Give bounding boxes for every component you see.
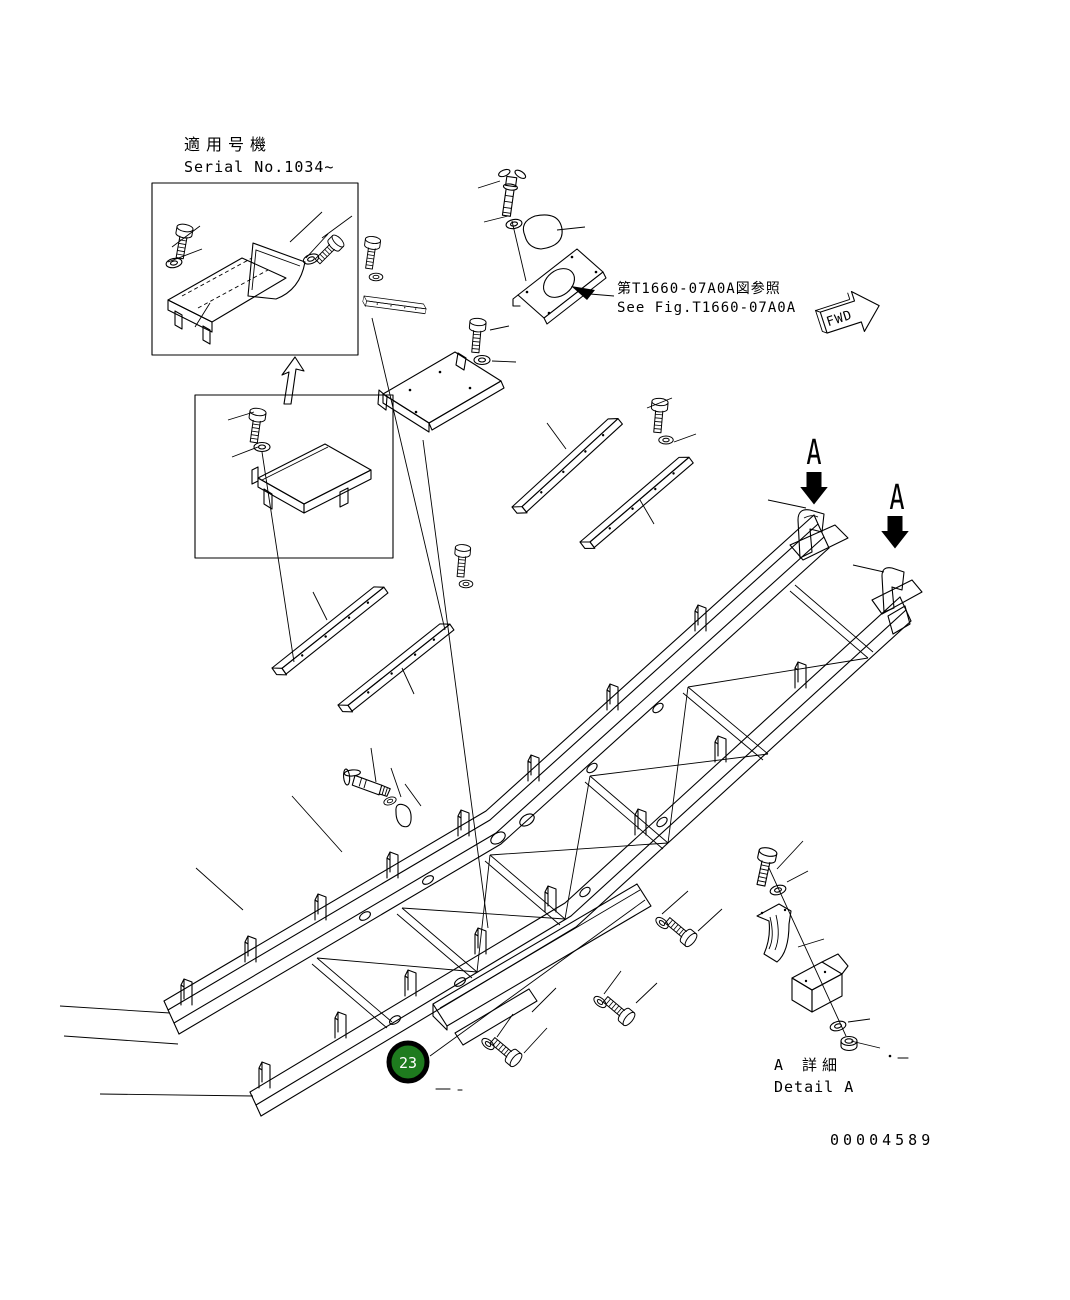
bottom-fastener-sets (480, 914, 699, 1068)
serial-label: 適用号機 Serial No.1034~ (184, 135, 334, 176)
fwd-arrow: FWD (813, 285, 885, 344)
applicable-machine-jp: 適用号機 (184, 135, 272, 154)
bolt-fastener (246, 407, 267, 443)
fwd-label: FWD (825, 308, 855, 330)
clamp-bracket (757, 904, 791, 962)
drain-valve (340, 766, 393, 796)
washer (369, 273, 383, 281)
mounting-strips (267, 414, 698, 717)
bolt-fastener (453, 544, 471, 578)
washer (769, 884, 787, 897)
box-bracket (792, 954, 848, 1012)
washer (829, 1020, 847, 1033)
washer (383, 795, 397, 806)
gusset-plate (248, 243, 305, 299)
grommet-plug (396, 804, 411, 826)
washer (254, 443, 270, 452)
detail-a-label: A 詳細 Detail A (774, 1056, 854, 1096)
see-fig-callout: 第T1660-07A0A図参照 See Fig.T1660-07A0A (571, 280, 796, 316)
section-marker-a1: A (800, 433, 828, 504)
nut (841, 1037, 857, 1051)
section-arrow-down-icon (800, 472, 828, 505)
washer (459, 580, 473, 588)
detail-a-assembly (752, 846, 857, 1050)
inset-box-serial-range (152, 183, 358, 355)
callout-23[interactable]: 23 (389, 1043, 427, 1081)
main-frame (164, 510, 922, 1116)
section-letter: A (889, 478, 904, 518)
callout-23-number[interactable]: 23 (399, 1054, 417, 1072)
section-arrow-down-icon (881, 516, 909, 549)
see-fig-jp: 第T1660-07A0A図参照 (617, 280, 781, 297)
inset-box-cover (195, 395, 393, 558)
upgrade-arrow (282, 357, 304, 404)
washer (659, 436, 673, 444)
section-letter: A (806, 433, 821, 473)
cover-plate-assembly (168, 258, 286, 344)
drawing-number: 00004589 (830, 1131, 934, 1149)
plate-with-hole (513, 249, 606, 324)
serial-range-text: Serial No.1034~ (184, 158, 334, 176)
bolt-fastener (467, 318, 486, 353)
see-fig-en: See Fig.T1660-07A0A (617, 300, 796, 316)
bolt-fastener (312, 233, 346, 267)
bolt-fastener (361, 236, 381, 270)
bolt-fastener (752, 846, 778, 887)
end-bracket-lower (872, 568, 922, 634)
detail-title-jp: A 詳細 (774, 1056, 842, 1074)
grease-fitting-top (492, 166, 528, 218)
parts-diagram-canvas: A A FWD 第T1660-07A0A図参照 See Fig.T1660-07… (0, 0, 1070, 1300)
section-marker-a2: A (881, 478, 909, 548)
channel-bracket (362, 291, 427, 320)
gasket-blob (523, 215, 562, 249)
washer (474, 356, 490, 365)
bolt-fastener (172, 223, 194, 259)
end-bracket-upper (790, 510, 848, 560)
washer (165, 257, 183, 269)
detail-title-en: Detail A (774, 1078, 854, 1096)
